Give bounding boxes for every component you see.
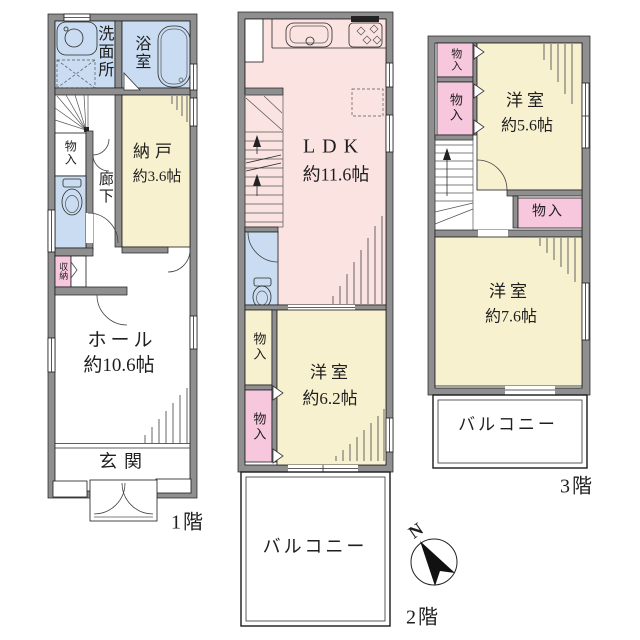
- closet-mid-label: 物入: [448, 93, 462, 123]
- floor1-plan: [48, 14, 197, 521]
- bedroom-area: [277, 310, 386, 465]
- floor2-plan: [238, 12, 393, 626]
- bedroom1-size: 約5.6帖: [501, 119, 553, 136]
- bedroom2-size: 約7.6帖: [485, 310, 537, 327]
- storage-label: 収納: [58, 262, 67, 280]
- storage-room-label: 納戸: [133, 143, 177, 161]
- floor2-label: 2階: [406, 608, 440, 629]
- hall-label: ホール: [87, 331, 156, 351]
- balcony3-label: バルコニー: [458, 416, 558, 434]
- bedroom1-area: [477, 43, 582, 190]
- floor1-label: 1階: [171, 513, 205, 534]
- entrance-label: 玄関: [99, 453, 149, 472]
- bedroom2-label: 洋室: [489, 283, 531, 301]
- bedroom-label: 洋室: [310, 364, 352, 382]
- bedroom1-label: 洋室: [506, 92, 548, 110]
- balcony2-label: バルコニー: [263, 538, 368, 557]
- washroom-label: 洗面所: [95, 25, 112, 79]
- closet-inner-label: 物入: [532, 206, 564, 221]
- hall-size: 約10.6帖: [83, 356, 154, 376]
- floorplan-page: 洗面所 浴室 物入 廊下 収納 納戸 約3.6帖 ホール 約10.6帖 玄関 1…: [0, 0, 640, 640]
- bedroom-size: 約6.2帖: [302, 390, 357, 408]
- bathroom-label: 浴室: [132, 35, 149, 71]
- closet-upper-label: 物入: [252, 332, 266, 362]
- storage-room-size: 約3.6帖: [133, 170, 182, 186]
- closet-label: 物入: [64, 140, 77, 166]
- floor3-label: 3階: [560, 477, 594, 498]
- closet-lower-label: 物入: [252, 412, 266, 442]
- compass-icon: [411, 539, 457, 586]
- closet-top-label: 物入: [449, 48, 461, 72]
- hallway-label: 廊下: [96, 171, 112, 205]
- ldk-label: LDK: [303, 137, 365, 158]
- ldk-size: 約11.6帖: [303, 166, 370, 185]
